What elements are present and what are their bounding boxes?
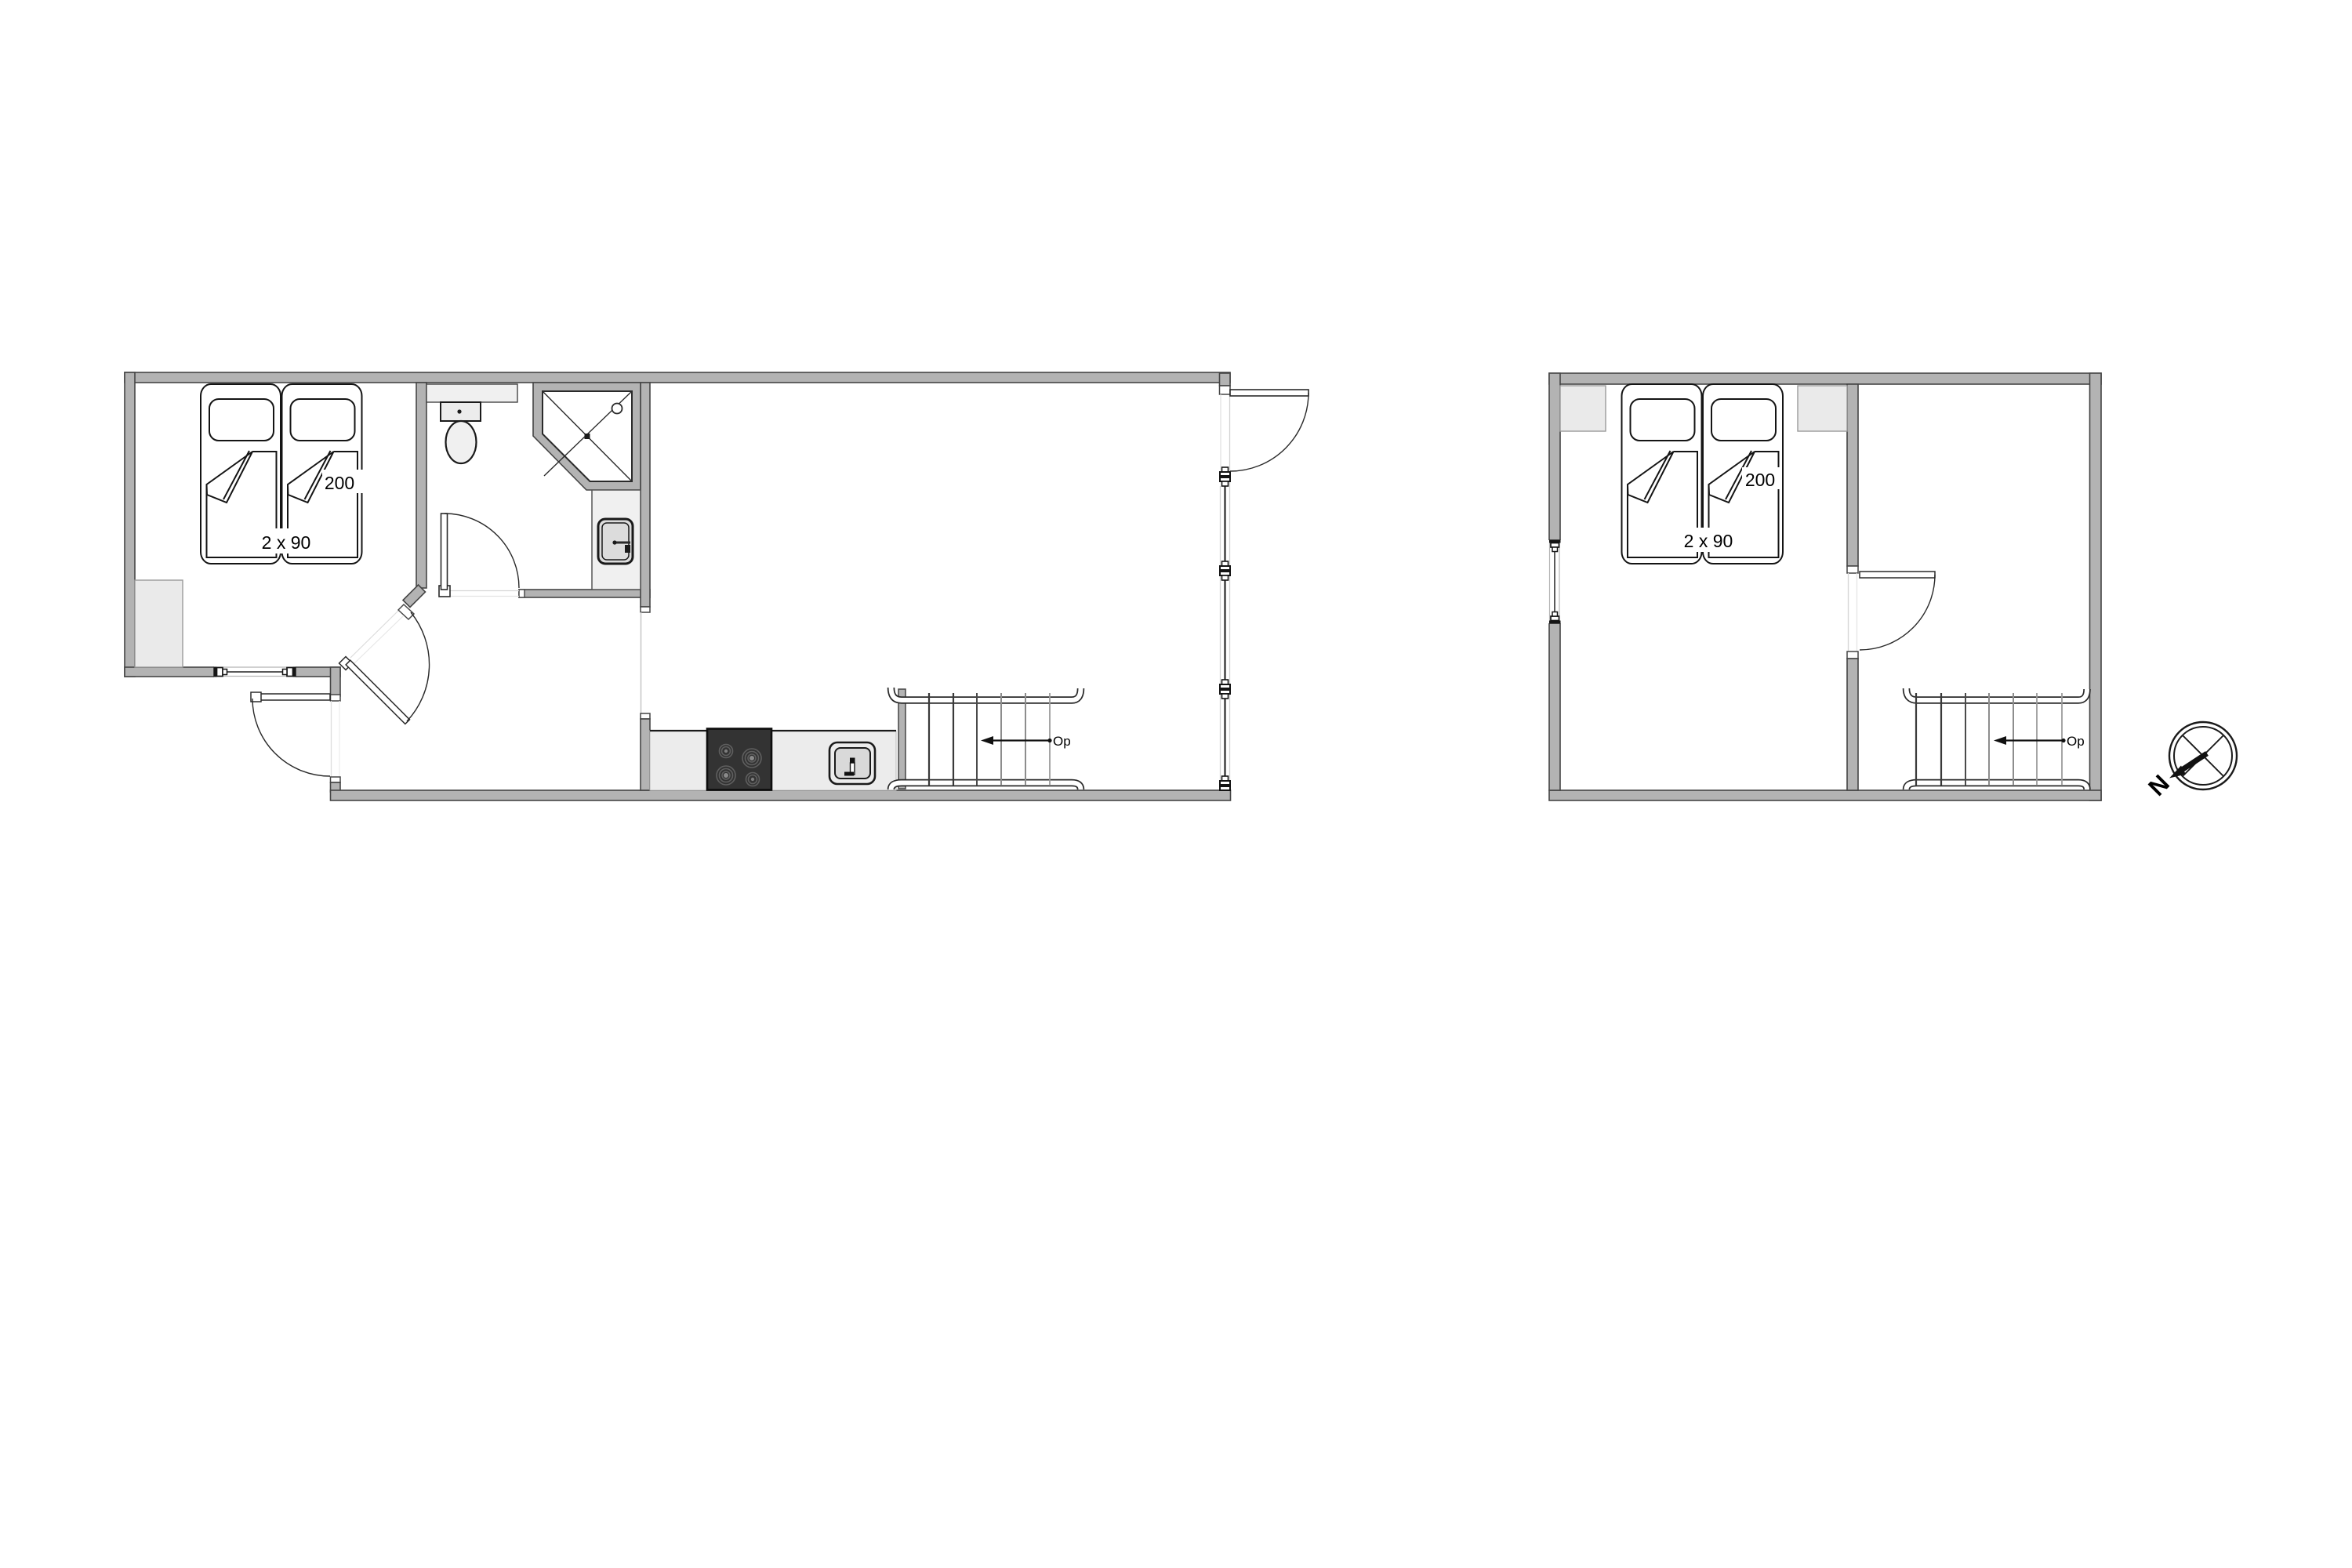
svg-text:Op: Op xyxy=(1053,734,1071,749)
svg-text:2 x 90: 2 x 90 xyxy=(262,532,311,553)
svg-text:200: 200 xyxy=(325,473,354,493)
svg-text:Op: Op xyxy=(2067,734,2085,749)
svg-text:200: 200 xyxy=(1745,470,1775,490)
svg-text:2 x 90: 2 x 90 xyxy=(1684,531,1733,551)
